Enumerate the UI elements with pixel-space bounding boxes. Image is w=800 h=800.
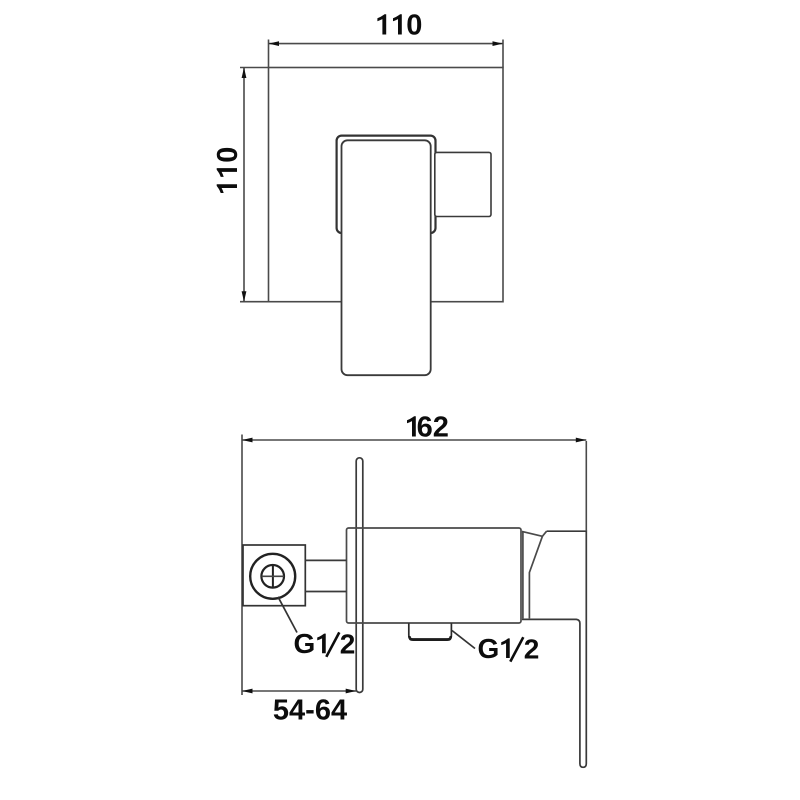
svg-text:2: 2 — [340, 629, 356, 660]
svg-text:2: 2 — [524, 633, 540, 664]
svg-text:G: G — [478, 633, 500, 664]
svg-text:62: 62 — [417, 412, 449, 444]
svg-text:0: 0 — [406, 10, 422, 42]
svg-text:0: 0 — [212, 147, 244, 163]
svg-text:G: G — [294, 628, 316, 659]
svg-text:54-64: 54-64 — [273, 695, 347, 727]
